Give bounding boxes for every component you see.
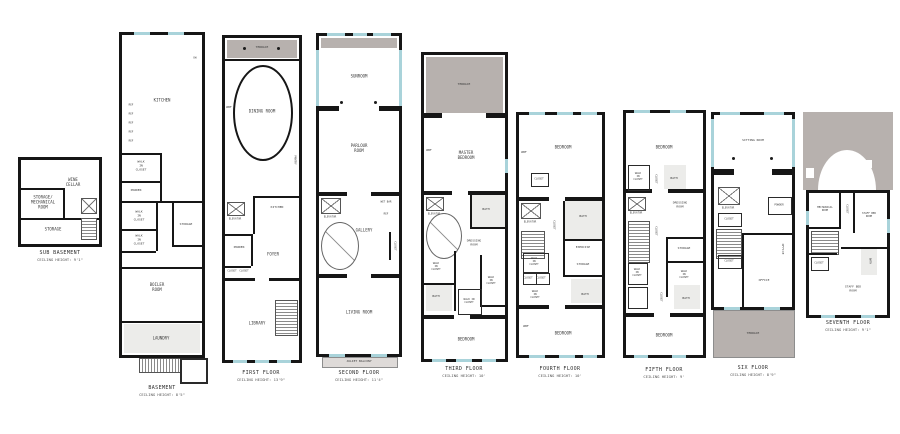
wall-segment bbox=[160, 153, 162, 201]
wall-segment bbox=[563, 201, 565, 275]
window bbox=[529, 355, 545, 358]
room-label: BEDROOM bbox=[555, 331, 572, 336]
wall-segment bbox=[21, 188, 63, 190]
room-label: KITCHEN bbox=[154, 98, 171, 103]
room-label: SITTING ROOM bbox=[742, 139, 764, 143]
room-label: BATH bbox=[868, 258, 871, 264]
wall-segment bbox=[122, 153, 160, 155]
wall-segment bbox=[122, 267, 202, 269]
window bbox=[792, 119, 795, 167]
floor-caption: FOURTH FLOOR CEILING HEIGHT: 10' bbox=[538, 366, 581, 378]
window bbox=[861, 315, 875, 318]
floor-name: SEVENTH FLOOR bbox=[825, 320, 871, 326]
room-label: STAFF BED ROOM bbox=[862, 212, 876, 218]
room-label: JULIET BALCONY bbox=[346, 360, 371, 364]
window bbox=[233, 360, 247, 363]
wall-segment bbox=[253, 196, 255, 234]
ceiling-height: CEILING HEIGHT: 8'5" bbox=[139, 392, 185, 397]
floor-caption: SUB BASEMENT CEILING HEIGHT: 9'1" bbox=[37, 250, 83, 262]
room-label: WALK IN CLOSET bbox=[134, 210, 145, 221]
ceiling-height: CEILING HEIGHT: 9' bbox=[643, 374, 684, 379]
room-label: WALK IN CLOSET bbox=[529, 257, 538, 267]
wall-segment bbox=[714, 169, 734, 175]
room-label: STORAGE bbox=[180, 223, 193, 227]
ceiling-height: CEILING HEIGHT: 10' bbox=[538, 373, 581, 378]
room-label: CLOSET bbox=[523, 276, 532, 279]
window bbox=[353, 33, 367, 36]
floorplan-basement: KITCHEN REF REF REF REF REF DW WALK IN C… bbox=[119, 32, 205, 358]
wall-segment bbox=[519, 305, 549, 309]
wall-segment bbox=[565, 305, 602, 309]
column-dot bbox=[732, 157, 735, 160]
basement-extension bbox=[180, 358, 208, 384]
closet-box bbox=[628, 287, 648, 309]
room-label: BOILER ROOM bbox=[150, 282, 164, 292]
elevator-shaft bbox=[521, 203, 541, 219]
room-label: PANTRY bbox=[293, 155, 296, 164]
room-label: REF bbox=[129, 112, 134, 115]
room-label: BEDROOM bbox=[656, 333, 673, 338]
wall-segment bbox=[519, 197, 549, 201]
room-label: WBF bbox=[521, 151, 526, 155]
floor-caption: THIRD FLOOR CEILING HEIGHT: 10' bbox=[442, 366, 485, 378]
floor-caption: SECOND FLOOR CEILING HEIGHT: 11'4" bbox=[335, 370, 383, 382]
wall-segment bbox=[424, 283, 454, 285]
wall-segment bbox=[319, 106, 339, 111]
wall-segment bbox=[319, 274, 347, 278]
room-label: BATH bbox=[670, 177, 677, 181]
wall-segment bbox=[470, 195, 472, 227]
roof-opening bbox=[858, 160, 872, 168]
floorplan-six-floor: SITTING ROOM ELEVATOR CLOSET POWDER OFFI… bbox=[711, 112, 795, 310]
ceiling-height: CEILING HEIGHT: 10' bbox=[442, 373, 485, 378]
column-dot bbox=[374, 101, 377, 104]
floor-name: SUB BASEMENT bbox=[37, 250, 83, 256]
window bbox=[168, 32, 184, 35]
room-label: WBF bbox=[523, 325, 528, 329]
window bbox=[583, 355, 597, 358]
terrace-dot bbox=[243, 47, 246, 50]
room-label: WALK IN CLOSET bbox=[633, 172, 642, 182]
wall-segment bbox=[122, 201, 202, 203]
room-label: WALK IN CLOSET bbox=[134, 234, 145, 245]
room-label: POWDER bbox=[774, 203, 783, 206]
wall-segment bbox=[122, 321, 202, 323]
wall-segment bbox=[486, 113, 505, 118]
wall-segment bbox=[251, 234, 253, 266]
floor-caption: SEVENTH FLOOR CEILING HEIGHT: 9'1" bbox=[825, 320, 871, 332]
room-label: CLOSET bbox=[393, 241, 396, 250]
room-label: EXERCISE bbox=[576, 246, 590, 250]
room-label: OFFICE bbox=[759, 279, 770, 283]
column-dot bbox=[770, 157, 773, 160]
wall-segment bbox=[424, 113, 442, 118]
wall-segment bbox=[670, 313, 703, 317]
room-label: TERRACE bbox=[458, 83, 471, 87]
room-label: REF bbox=[384, 212, 389, 215]
wall-segment bbox=[389, 232, 391, 260]
staircase bbox=[628, 221, 650, 263]
room-label: CLOSET bbox=[552, 220, 555, 229]
wall-segment bbox=[470, 315, 505, 319]
window bbox=[581, 112, 597, 115]
bath-floor bbox=[565, 201, 602, 239]
floorplan-third-floor: TERRACE MASTER BEDROOM WBF ELEVATOR BATH… bbox=[421, 52, 508, 362]
room-label: REF bbox=[129, 139, 134, 142]
wall-segment bbox=[319, 192, 347, 196]
window bbox=[887, 219, 890, 233]
room-label: WALK IN CLOSET bbox=[632, 268, 641, 278]
room-label: WALK IN CLOSET bbox=[530, 290, 539, 300]
room-label: KITCHEN bbox=[271, 206, 284, 210]
window bbox=[711, 119, 714, 167]
room-label: REF bbox=[129, 130, 134, 133]
window bbox=[505, 159, 508, 173]
window bbox=[399, 50, 402, 106]
room-label: WALK IN CLOSET bbox=[431, 262, 440, 272]
window bbox=[373, 33, 391, 36]
wall-segment bbox=[666, 261, 703, 263]
room-label: CLOSET bbox=[534, 177, 543, 180]
room-label: WBF bbox=[426, 149, 431, 153]
window bbox=[821, 315, 835, 318]
window bbox=[529, 112, 545, 115]
room-label: STORAGE bbox=[678, 247, 691, 251]
elevator-shaft bbox=[426, 197, 444, 211]
room-label: CLOSET bbox=[724, 259, 733, 262]
room-label: CLOSET bbox=[239, 269, 248, 272]
wall-segment bbox=[563, 275, 602, 277]
room-label: WBF bbox=[226, 106, 231, 110]
wall-segment bbox=[379, 106, 399, 111]
ceiling-height: CEILING HEIGHT: 11'4" bbox=[335, 377, 383, 382]
room-label: ELEVATOR bbox=[722, 206, 735, 209]
window bbox=[670, 110, 686, 113]
elevator-shaft bbox=[227, 202, 245, 216]
wall-segment bbox=[809, 253, 837, 255]
room-label: LIVING ROOM bbox=[346, 310, 373, 315]
roof-opening bbox=[806, 168, 814, 178]
spiral-stair bbox=[426, 213, 462, 259]
wall-segment bbox=[122, 251, 156, 253]
floorplan-sheet: WINE CELLAR STORAGE/ MECHANICAL ROOM STO… bbox=[0, 0, 900, 434]
floorplan-first-floor: TERRACE DINING ROOM WBF PANTRY KITCHEN E… bbox=[222, 35, 302, 363]
room-label: TERRACE bbox=[747, 332, 760, 336]
floor-caption: FIFTH FLOOR CEILING HEIGHT: 9' bbox=[643, 367, 684, 379]
wall-segment bbox=[563, 239, 602, 241]
wall-segment bbox=[253, 196, 299, 198]
wall-segment bbox=[809, 227, 841, 229]
room-label: BEDROOM bbox=[458, 337, 475, 342]
room-label: REF bbox=[129, 103, 134, 106]
room-label: CLOSET bbox=[654, 226, 657, 235]
terrace-dot bbox=[277, 47, 280, 50]
room-label: BEDROOM bbox=[656, 145, 673, 150]
room-label: WALK IN CLOSET bbox=[136, 160, 147, 171]
window bbox=[482, 359, 496, 362]
wall-segment bbox=[172, 201, 174, 245]
wall-segment bbox=[626, 313, 654, 317]
room-label: CLOSET bbox=[845, 204, 848, 213]
room-label: CLOSET bbox=[659, 292, 662, 301]
room-label: REF bbox=[129, 121, 134, 124]
wall-segment bbox=[839, 193, 841, 227]
floor-name: BASEMENT bbox=[139, 385, 185, 391]
room-label: PARLOUR ROOM bbox=[351, 143, 368, 153]
wall-segment bbox=[269, 278, 299, 281]
wall-segment bbox=[63, 188, 65, 218]
ceiling-height: CEILING HEIGHT: 9'1" bbox=[825, 327, 871, 332]
room-label: POWDER bbox=[131, 189, 142, 193]
wall-segment bbox=[772, 169, 792, 175]
floorplan-seventh-floor: MECHANICAL ROOM CLOSET STAFF BED ROOM BA… bbox=[806, 190, 890, 318]
room-label: ELEVATOR bbox=[324, 215, 337, 218]
room-label: POWDER bbox=[234, 246, 245, 250]
room-label: ELEVATOR bbox=[229, 217, 242, 220]
room-label: ELEVATOR bbox=[630, 211, 643, 214]
window bbox=[277, 360, 291, 363]
wall-segment bbox=[122, 181, 160, 183]
wall-segment bbox=[480, 305, 505, 307]
wall-segment bbox=[470, 227, 505, 229]
floor-name: SIX FLOOR bbox=[730, 365, 776, 371]
floor-name: FIFTH FLOOR bbox=[643, 367, 684, 373]
room-label: STORAGE bbox=[577, 263, 590, 267]
wall-segment bbox=[225, 266, 251, 268]
wall-segment bbox=[666, 237, 668, 297]
room-label: CLOSET bbox=[814, 261, 823, 264]
roof-strip bbox=[321, 38, 397, 48]
elevator-shaft bbox=[81, 198, 97, 214]
window bbox=[634, 110, 650, 113]
room-label: DRESSING ROOM bbox=[467, 239, 481, 247]
wall-segment bbox=[424, 315, 454, 319]
room-label: FOYER bbox=[267, 252, 279, 257]
wall-segment bbox=[172, 245, 202, 247]
floor-caption: FIRST FLOOR CEILING HEIGHT: 13'9" bbox=[237, 370, 285, 382]
room-label: WET BAR bbox=[381, 200, 392, 203]
window bbox=[134, 32, 150, 35]
floor-name: FIRST FLOOR bbox=[237, 370, 285, 376]
wall-segment bbox=[668, 189, 703, 193]
floor-name: FOURTH FLOOR bbox=[538, 366, 581, 372]
room-label: DW bbox=[193, 56, 196, 59]
room-label: CLOSET bbox=[654, 174, 657, 183]
floorplan-second-floor: SUNROOM PARLOUR ROOM ELEVATOR WET BAR RE… bbox=[316, 33, 402, 357]
room-label: GALLERY bbox=[356, 228, 373, 233]
room-label: LIBRARY bbox=[249, 321, 266, 326]
window bbox=[327, 33, 345, 36]
floor-name: THIRD FLOOR bbox=[442, 366, 485, 372]
window bbox=[456, 359, 472, 362]
wall-segment bbox=[742, 233, 792, 235]
wall-segment bbox=[156, 201, 158, 251]
room-label: CLOSET bbox=[536, 276, 545, 279]
room-label: CLOSET bbox=[227, 269, 236, 272]
room-label: WINE CELLAR bbox=[66, 177, 80, 187]
elevator-shaft bbox=[718, 187, 740, 205]
room-label: DINING ROOM bbox=[249, 109, 276, 114]
room-label: BATH bbox=[682, 297, 689, 301]
window bbox=[634, 355, 648, 358]
window bbox=[764, 112, 784, 115]
elevator-shaft bbox=[321, 198, 341, 214]
wall-segment bbox=[371, 274, 399, 278]
room-label: WALK IN CLOSET bbox=[464, 298, 475, 304]
spiral-stair bbox=[321, 222, 359, 270]
room-label: MECHANICAL ROOM bbox=[817, 206, 833, 212]
room-label: BATH bbox=[579, 215, 586, 219]
room-label: WALK IN CLOSET bbox=[679, 270, 688, 280]
wall-segment bbox=[424, 191, 452, 195]
floor-name: SECOND FLOOR bbox=[335, 370, 383, 376]
wall-segment bbox=[742, 233, 744, 307]
room-label: BATH bbox=[482, 208, 489, 212]
wall-segment bbox=[371, 192, 399, 196]
wall-segment bbox=[454, 251, 456, 311]
window bbox=[720, 112, 740, 115]
room-label: ELEVATOR bbox=[524, 220, 537, 223]
ceiling-height: CEILING HEIGHT: 8'9" bbox=[730, 372, 776, 377]
room-label: BATH bbox=[581, 293, 588, 297]
room-label: WALK IN CLOSET bbox=[486, 276, 495, 286]
room-label: CLOSET bbox=[724, 217, 733, 220]
room-label: STORAGE/ MECHANICAL ROOM bbox=[31, 195, 55, 210]
wall-segment bbox=[225, 234, 251, 236]
exterior-stair bbox=[139, 358, 181, 373]
staircase bbox=[811, 231, 839, 255]
bath-floor bbox=[571, 279, 602, 303]
room-label: LAUNDRY bbox=[153, 336, 170, 341]
staircase bbox=[275, 300, 298, 336]
floor-caption: BASEMENT CEILING HEIGHT: 8'5" bbox=[139, 385, 185, 397]
window bbox=[672, 355, 686, 358]
room-label: STORAGE bbox=[45, 227, 62, 232]
window bbox=[255, 360, 269, 363]
room-label: OFFICE bbox=[780, 244, 784, 255]
room-label: BEDROOM bbox=[555, 145, 572, 150]
wall-segment bbox=[122, 229, 156, 231]
column-dot bbox=[340, 101, 343, 104]
floorplan-fourth-floor: BEDROOM WBF CLOSET ELEVATOR BATH CLOSET … bbox=[516, 112, 605, 358]
room-label: STAFF BED ROOM bbox=[845, 285, 861, 293]
wall-segment bbox=[853, 193, 855, 233]
window bbox=[316, 50, 319, 106]
room-label: SUNROOM bbox=[351, 74, 368, 79]
window bbox=[557, 112, 573, 115]
floorplan-sub-basement: WINE CELLAR STORAGE/ MECHANICAL ROOM STO… bbox=[18, 157, 102, 247]
room-label: TERRACE bbox=[256, 46, 269, 50]
wall-segment bbox=[225, 278, 255, 281]
ceiling-height: CEILING HEIGHT: 9'1" bbox=[37, 257, 83, 262]
elevator-shaft bbox=[628, 197, 646, 211]
window bbox=[559, 355, 575, 358]
floor-caption: SIX FLOOR CEILING HEIGHT: 8'9" bbox=[730, 365, 776, 377]
wall-segment bbox=[225, 59, 299, 61]
room-label: MASTER BEDROOM bbox=[458, 150, 475, 160]
staircase bbox=[81, 218, 97, 240]
floorplan-fifth-floor: BEDROOM WALK IN CLOSET CLOSET BATH ELEVA… bbox=[623, 110, 706, 358]
room-label: BATH bbox=[432, 295, 439, 299]
window bbox=[432, 359, 446, 362]
ceiling-height: CEILING HEIGHT: 13'9" bbox=[237, 377, 285, 382]
room-label: DRESSING ROOM bbox=[673, 201, 687, 209]
wall-segment bbox=[666, 237, 703, 239]
window bbox=[806, 211, 809, 225]
